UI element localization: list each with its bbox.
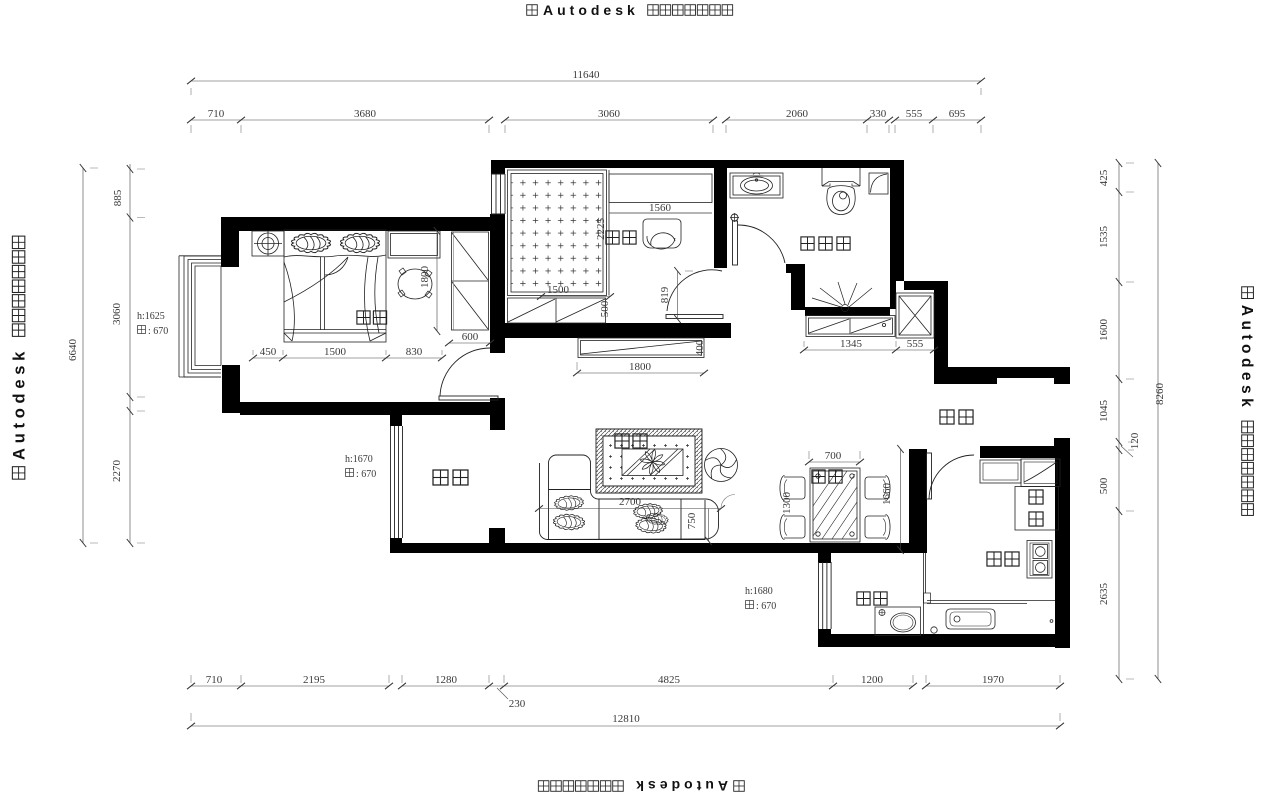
svg-text:1800: 1800 [419,266,431,289]
svg-text:1345: 1345 [840,338,863,350]
svg-text:1970: 1970 [982,674,1005,686]
svg-text:425: 425 [1098,169,1110,186]
svg-text:1500: 1500 [547,284,570,296]
svg-text:400: 400 [694,339,706,356]
svg-text:710: 710 [208,108,225,120]
svg-text:1600: 1600 [1098,319,1110,342]
svg-text:3060: 3060 [598,108,621,120]
svg-text:3680: 3680 [354,108,377,120]
svg-text:2195: 2195 [303,674,326,686]
svg-text:2270: 2270 [111,460,123,483]
svg-text:3060: 3060 [111,303,123,326]
svg-text:2225: 2225 [595,218,607,241]
svg-text:885: 885 [112,189,124,206]
svg-text:1500: 1500 [324,346,347,358]
svg-text:1660: 1660 [881,483,893,506]
svg-text:1200: 1200 [861,674,884,686]
svg-text:4825: 4825 [658,674,681,686]
svg-text:500: 500 [1098,477,1110,494]
svg-text:120: 120 [1129,432,1141,449]
svg-text:h:1625: h:1625 [137,311,165,322]
svg-text:710: 710 [206,674,223,686]
svg-text:2635: 2635 [1098,583,1110,606]
svg-text:h:1680: h:1680 [745,586,773,597]
svg-text:555: 555 [906,108,923,120]
svg-text:: 670: : 670 [148,326,168,337]
svg-text:8260: 8260 [1154,383,1166,406]
svg-text:830: 830 [406,346,423,358]
svg-text:1800: 1800 [629,361,652,373]
svg-text:500: 500 [599,300,611,317]
svg-text:695: 695 [949,108,966,120]
svg-text:: 670: : 670 [756,601,776,612]
svg-text:1560: 1560 [649,202,672,214]
svg-text:2060: 2060 [786,108,809,120]
svg-text:1045: 1045 [1098,400,1110,423]
svg-text:2700: 2700 [619,496,642,508]
svg-text:h:1670: h:1670 [345,454,373,465]
svg-text:700: 700 [825,450,842,462]
svg-text:330: 330 [870,108,887,120]
svg-text:750: 750 [686,512,698,529]
svg-text:600: 600 [462,331,479,343]
svg-text:12810: 12810 [612,713,640,725]
svg-text:6640: 6640 [67,339,79,362]
svg-text:555: 555 [907,338,924,350]
svg-text:1535: 1535 [1098,226,1110,249]
svg-text:1280: 1280 [435,674,458,686]
svg-text:819: 819 [659,286,671,303]
svg-text:230: 230 [509,698,526,710]
svg-text:11640: 11640 [572,69,600,81]
svg-text:450: 450 [260,346,277,358]
svg-text:: 670: : 670 [356,469,376,480]
svg-text:1300: 1300 [781,492,793,515]
